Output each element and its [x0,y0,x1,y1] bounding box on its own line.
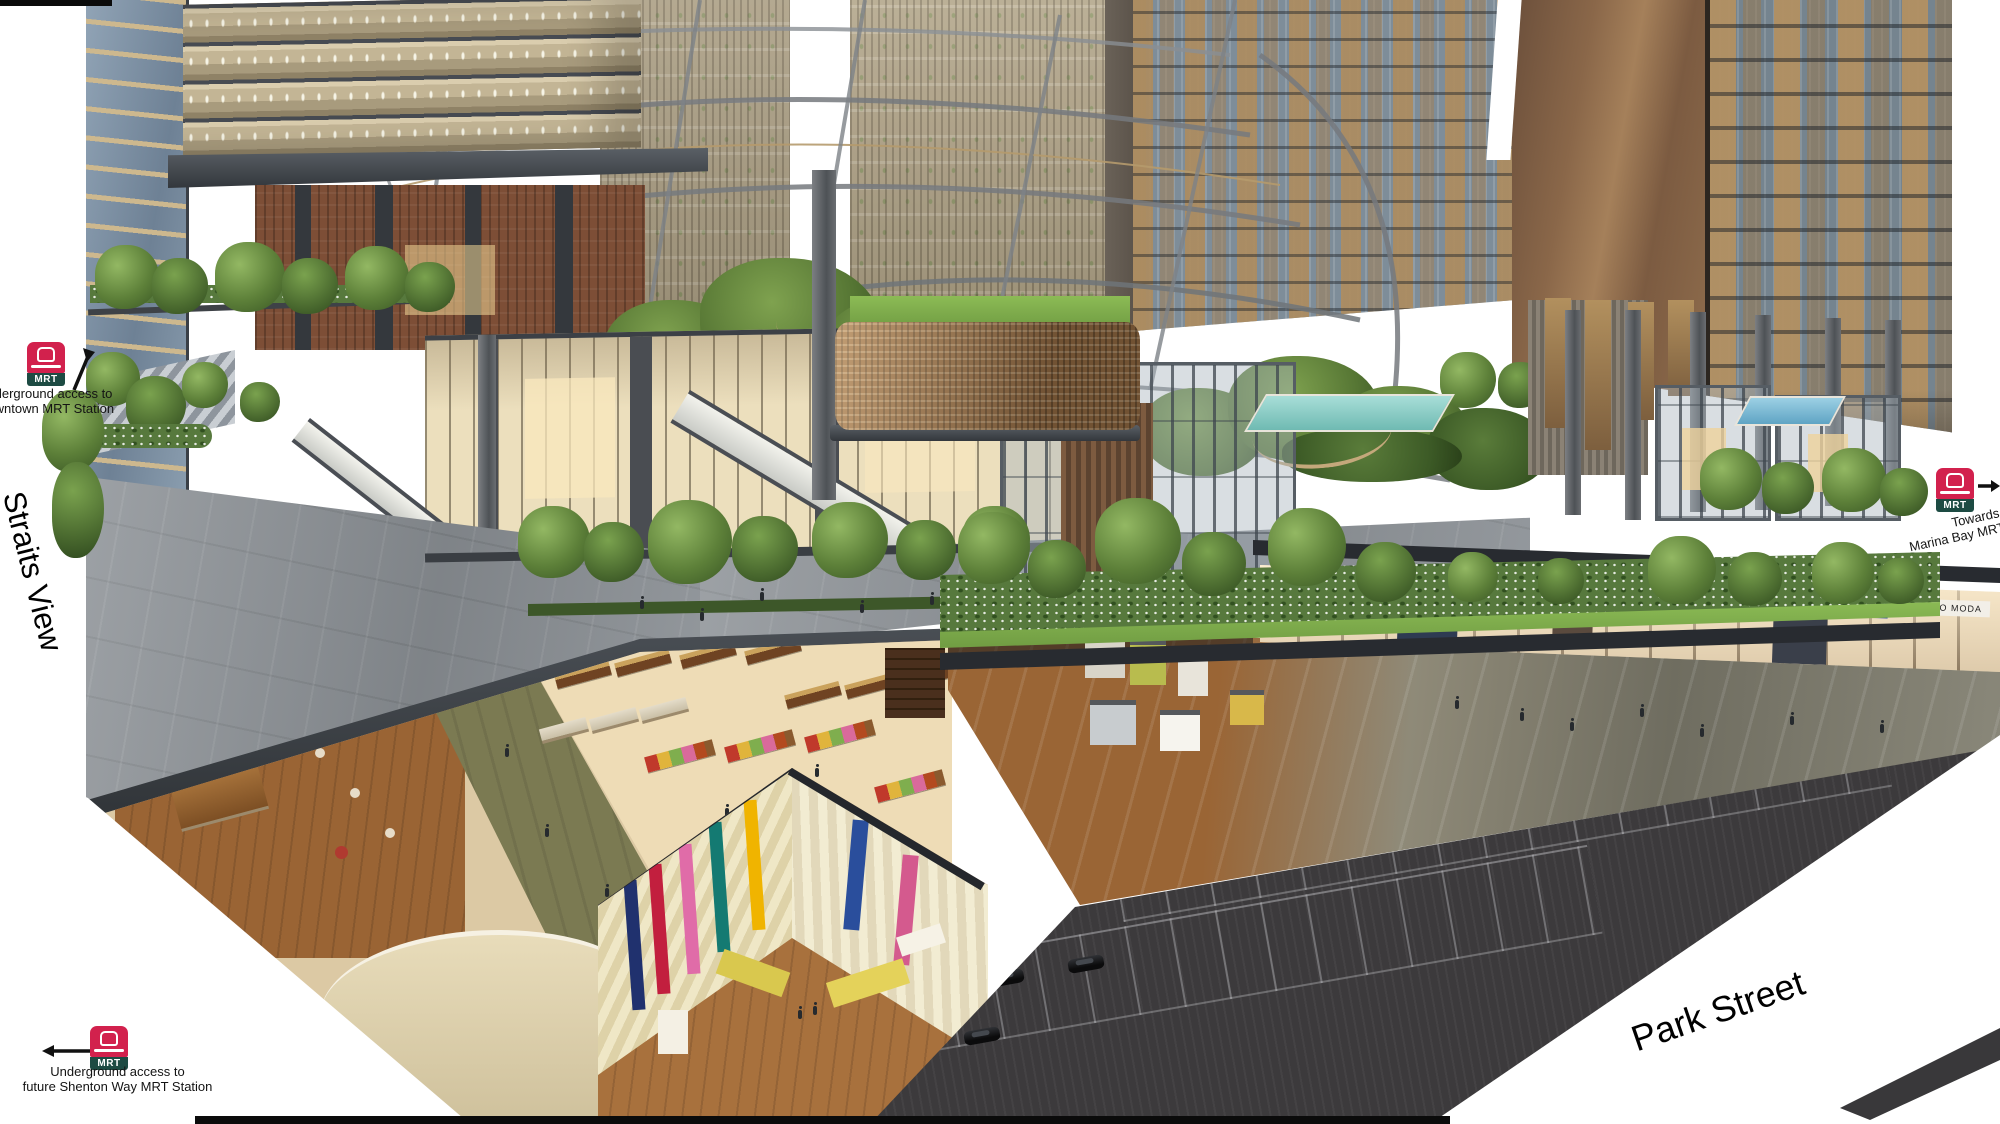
person-figure [760,592,764,601]
cut-edge-bar-bottom [195,1116,1450,1124]
person-figure [1880,724,1884,733]
column [555,185,573,350]
parking-stall-lines [898,845,1603,1055]
person-figure [860,604,864,613]
pilotis-column [1625,310,1641,520]
person-figure [545,828,549,837]
cafe-table [315,748,325,758]
soffit-bronze-fin [1585,300,1611,450]
pilotis-column [1565,310,1581,515]
person-figure [1790,716,1794,725]
person-figure [1700,728,1704,737]
cafe-table [385,828,395,838]
promo-kiosk [1160,710,1200,751]
pilotis-column [812,170,836,500]
train-icon [27,342,65,373]
water-feature [1244,394,1455,432]
train-icon [1936,468,1974,499]
person-figure [700,612,704,621]
annotation-line: Downtown MRT Station [0,401,138,416]
annotation-line: future Shenton Way MRT Station [5,1079,230,1094]
cafe-table [350,788,360,798]
annotation-line: Underground access to [0,386,138,401]
podium-tree [1880,468,1928,516]
terrace-planting [92,424,212,448]
right-arrow-icon [1978,478,2000,494]
person-figure [1455,700,1459,709]
architectural-rendering-canvas: BAY FILA VERO MODA [0,0,2000,1124]
display-stand [658,1010,688,1054]
person-figure [930,596,934,605]
office-floor-stack [183,0,641,157]
person-figure [1570,722,1574,731]
person-figure [815,768,819,777]
wine-wall [885,648,945,718]
person-figure [605,888,609,897]
person-figure [813,1006,817,1015]
restaurant-pod [835,322,1140,430]
person-figure [505,748,509,757]
mrt-badge-label: MRT [27,373,65,386]
promo-kiosk [1090,700,1136,745]
cut-edge-bar-top [0,0,112,6]
annotation-shenton-way: Underground access to future Shenton Way… [5,1064,230,1095]
person-figure [1640,708,1644,717]
lap-pool [1734,396,1846,426]
person-figure [640,600,644,609]
person-figure [798,1010,802,1019]
annotation-line: Underground access to [5,1064,230,1079]
annotation-downtown-access: Underground access to Downtown MRT Stati… [0,386,138,417]
mrt-badge-label: MRT [1936,499,1974,512]
red-kiosk-table [335,846,348,859]
train-icon [90,1026,128,1057]
mrt-badge: MRT [1936,468,1974,512]
left-arrow-icon [38,1042,93,1060]
promo-kiosk [1230,690,1264,725]
person-figure [1520,712,1524,721]
mrt-badge: MRT [27,342,65,386]
lit-interior [525,377,615,499]
